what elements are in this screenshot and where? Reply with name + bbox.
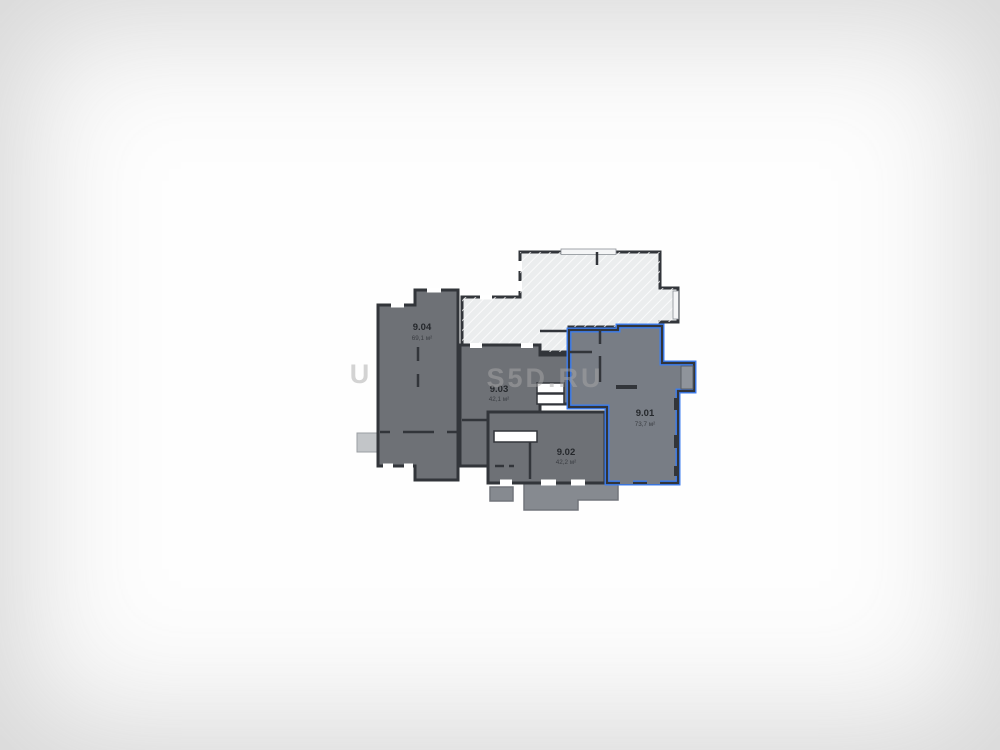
shaft [494,431,537,442]
balcony-left [357,433,378,452]
unit-9-04-area: 69,1 м² [412,335,432,342]
unit-9-02-region[interactable] [488,412,605,486]
shaft [537,394,564,404]
unit-9-02-number: 9.02 [557,447,576,458]
unit-9-02-area: 42,2 м² [556,459,576,466]
door-gap [480,295,492,300]
floorplan-viewer: 9.04 69,1 м² 9.03 42,1 м² 9.02 42,2 м² 9… [0,0,1000,750]
door-gap [517,281,522,291]
unit-9-04-number: 9.04 [413,322,432,333]
watermark-partial: U [350,359,373,389]
unit-9-03-area: 42,1 м² [489,396,509,403]
window [561,249,616,255]
unit-9-01-number: 9.01 [636,408,655,419]
balcony-right [681,366,693,389]
unit-9-01-area: 73,7 м² [635,421,655,428]
apron-notch [490,487,513,501]
floorplan-canvas: 9.04 69,1 м² 9.03 42,1 м² 9.02 42,2 м² 9… [0,0,1000,750]
apron-bottom [524,483,618,510]
door-gap [517,261,522,271]
watermark-text: S5D.RU [486,363,603,393]
unit-9-04-region[interactable] [378,288,458,481]
window [673,291,679,319]
